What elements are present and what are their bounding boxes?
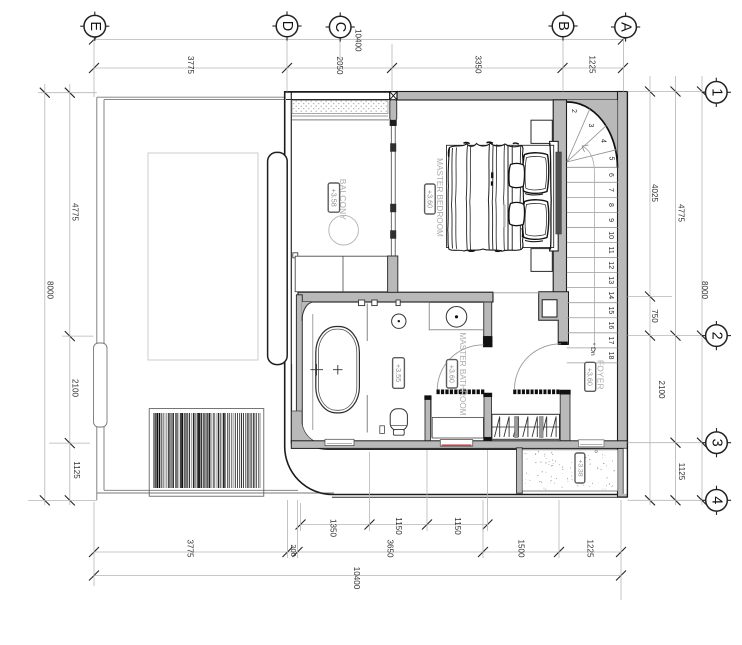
svg-text:3650: 3650 <box>386 539 395 558</box>
svg-text:+3.60: +3.60 <box>586 368 595 386</box>
svg-text:+3.60: +3.60 <box>448 365 457 383</box>
svg-text:2100: 2100 <box>71 379 80 398</box>
svg-text:MASTER BEDROOM: MASTER BEDROOM <box>435 158 444 237</box>
svg-text:4: 4 <box>600 139 607 143</box>
svg-text:1350: 1350 <box>329 519 338 538</box>
svg-text:1150: 1150 <box>453 517 462 535</box>
svg-text:3775: 3775 <box>186 539 195 558</box>
svg-text:1125: 1125 <box>677 463 686 481</box>
svg-text:14: 14 <box>607 291 614 299</box>
svg-text:FOYER: FOYER <box>596 360 606 390</box>
svg-text:5: 5 <box>608 157 615 161</box>
svg-text:8000: 8000 <box>46 281 55 300</box>
svg-text:1225: 1225 <box>586 539 595 558</box>
svg-text:B: B <box>555 21 571 31</box>
svg-text:1500: 1500 <box>517 539 526 558</box>
svg-text:18: 18 <box>607 352 614 360</box>
svg-text:15: 15 <box>607 306 614 314</box>
svg-text:200: 200 <box>289 544 298 556</box>
svg-text:A: A <box>618 22 634 32</box>
svg-text:12: 12 <box>607 261 614 269</box>
svg-text:4775: 4775 <box>71 203 80 222</box>
svg-text:Dn: Dn <box>589 347 596 356</box>
svg-text:17: 17 <box>607 337 614 345</box>
svg-text:2: 2 <box>570 109 577 113</box>
svg-text:9: 9 <box>607 218 614 222</box>
svg-text:3: 3 <box>709 439 725 447</box>
svg-text:1: 1 <box>708 88 724 96</box>
svg-text:8: 8 <box>607 203 614 207</box>
svg-text:C: C <box>332 22 348 32</box>
svg-text:4025: 4025 <box>650 184 659 203</box>
svg-text:2100: 2100 <box>657 380 666 399</box>
svg-text:7: 7 <box>607 188 614 192</box>
svg-text:4: 4 <box>709 496 725 504</box>
svg-text:3775: 3775 <box>186 56 195 75</box>
svg-text:2050: 2050 <box>335 56 344 75</box>
svg-text:MASTER BATHROOM: MASTER BATHROOM <box>458 332 467 415</box>
svg-text:13: 13 <box>607 276 614 284</box>
svg-text:8000: 8000 <box>700 281 709 300</box>
svg-text:11: 11 <box>607 247 614 254</box>
svg-text:+3.55: +3.55 <box>394 364 403 382</box>
svg-text:10400: 10400 <box>353 29 362 52</box>
svg-text:3350: 3350 <box>473 55 482 74</box>
svg-text:+3.60: +3.60 <box>425 190 434 208</box>
svg-text:+3.58: +3.58 <box>329 189 338 207</box>
svg-text:750: 750 <box>650 309 659 323</box>
svg-text:1225: 1225 <box>588 55 597 74</box>
svg-text:+3.38: +3.38 <box>576 459 583 476</box>
svg-text:1125: 1125 <box>72 461 81 479</box>
svg-text:10400: 10400 <box>352 567 361 590</box>
svg-text:16: 16 <box>607 322 614 330</box>
svg-text:4775: 4775 <box>677 204 686 223</box>
svg-text:2: 2 <box>708 332 724 340</box>
svg-text:1150: 1150 <box>394 517 403 535</box>
svg-text:10: 10 <box>607 231 614 239</box>
svg-text:E: E <box>87 21 103 31</box>
svg-text:6: 6 <box>607 173 614 177</box>
svg-text:3: 3 <box>587 124 594 128</box>
svg-text:D: D <box>279 21 295 31</box>
